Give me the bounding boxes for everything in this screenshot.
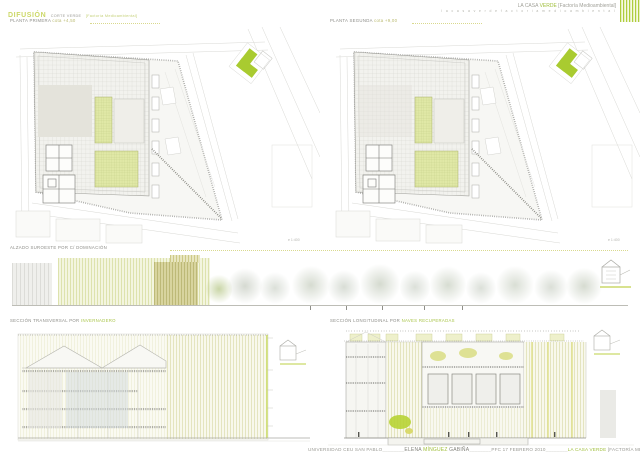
header-right: LA CASA VERDE [Factoría Medioambiental] … <box>436 3 616 13</box>
program-zone-gray <box>38 85 92 137</box>
footer-project-subtitle: [FACTORÍA MEDIOAMBIENTAL] <box>606 447 640 452</box>
neighbor-facade <box>12 263 52 305</box>
green-building-icon <box>549 40 592 84</box>
leader-line <box>90 23 160 24</box>
figure <box>382 306 383 310</box>
author-name: ELENA MÍNGUEZ GABIÑA <box>404 447 469 453</box>
veil-volume <box>166 335 267 439</box>
green-room-small <box>415 97 432 143</box>
tree <box>328 269 360 305</box>
plan-right-note: cota +9,00 <box>374 18 397 23</box>
figure <box>310 306 311 310</box>
program-zone-gray <box>358 85 412 137</box>
rule: ________ <box>382 447 404 452</box>
section-left-note: INVERNADERO <box>81 318 116 323</box>
green-room-large <box>95 151 138 187</box>
green-building-icon <box>229 40 272 84</box>
presentation-board: DIFUSIÓN CORTE VERDE [Factoría Medioambi… <box>0 0 640 460</box>
elevation-drawing <box>10 255 630 311</box>
section-transversal-drawing <box>8 328 326 448</box>
rule: ________ <box>546 447 568 452</box>
site-plan-drawing <box>10 27 320 249</box>
plan-left-note: cota +4,50 <box>52 18 75 23</box>
interior-planting <box>389 415 411 429</box>
core-zone <box>114 99 144 143</box>
elevation-label: ALZADO SUROESTE POR C/ DOMINACIÓN <box>10 245 107 250</box>
plan-right-scale: e 1:400 <box>608 238 620 242</box>
project-tagline: l a c a s a v e r d e f a c t o r í a m … <box>436 9 616 13</box>
green-room-large <box>415 151 458 187</box>
tree <box>360 263 400 305</box>
tree <box>466 271 496 305</box>
veil-volume <box>524 342 586 438</box>
left-tower <box>346 332 386 438</box>
section-right-note: NAVES RECUPERADAS <box>402 318 455 323</box>
section-left-label: SECCIÓN TRANSVERSAL POR INVERNADERO <box>10 318 116 323</box>
plan-right-drawing <box>330 27 640 254</box>
glazing <box>66 372 128 428</box>
site-plan-drawing <box>330 27 640 249</box>
footer-project-title: LA CASA VERDE <box>568 447 607 452</box>
tree <box>566 267 602 305</box>
plan-right-label: PLANTA SEGUNDA cota +9,00 <box>330 18 397 23</box>
core-zone <box>434 99 464 143</box>
plan-left-label: PLANTA PRIMERA cota +4,50 <box>10 18 76 23</box>
figure <box>346 306 347 310</box>
tree <box>430 265 466 305</box>
tree <box>228 267 262 305</box>
margin-block <box>600 390 616 438</box>
author-middle-name: MÍNGUEZ <box>423 447 447 453</box>
tree <box>534 269 568 305</box>
green-stripes-logo <box>620 0 640 22</box>
tree <box>292 265 330 305</box>
figure <box>424 306 425 310</box>
title-block: UNIVERSIDAD CEU SAN PABLO________ELENA M… <box>308 447 640 453</box>
leader-line <box>412 23 482 24</box>
green-room-small <box>95 97 112 143</box>
plan-left-scale: e 1:400 <box>288 238 300 242</box>
section-longitudinal-drawing <box>328 326 634 454</box>
tree <box>260 271 290 305</box>
rule: ________ <box>469 447 491 452</box>
tree <box>400 269 430 305</box>
facade-olive-block <box>154 262 198 305</box>
figure <box>462 306 463 310</box>
plan-left-drawing <box>10 27 320 254</box>
project-date: PFC 17 FEBRERO 2010 <box>491 447 545 452</box>
section-right-label: SECCIÓN LONGITUDINAL POR NAVES RECUPERAD… <box>330 318 455 323</box>
leader-line <box>170 250 628 251</box>
sheet-subtitle-2: [Factoría Medioambiental] <box>86 14 137 18</box>
axonometric-key-icon <box>598 257 632 293</box>
ground-line <box>12 305 628 306</box>
axonometric-key-icon <box>594 330 620 354</box>
axonometric-key-icon <box>280 340 306 364</box>
university-name: UNIVERSIDAD CEU SAN PABLO <box>308 447 382 452</box>
tree <box>496 265 534 305</box>
